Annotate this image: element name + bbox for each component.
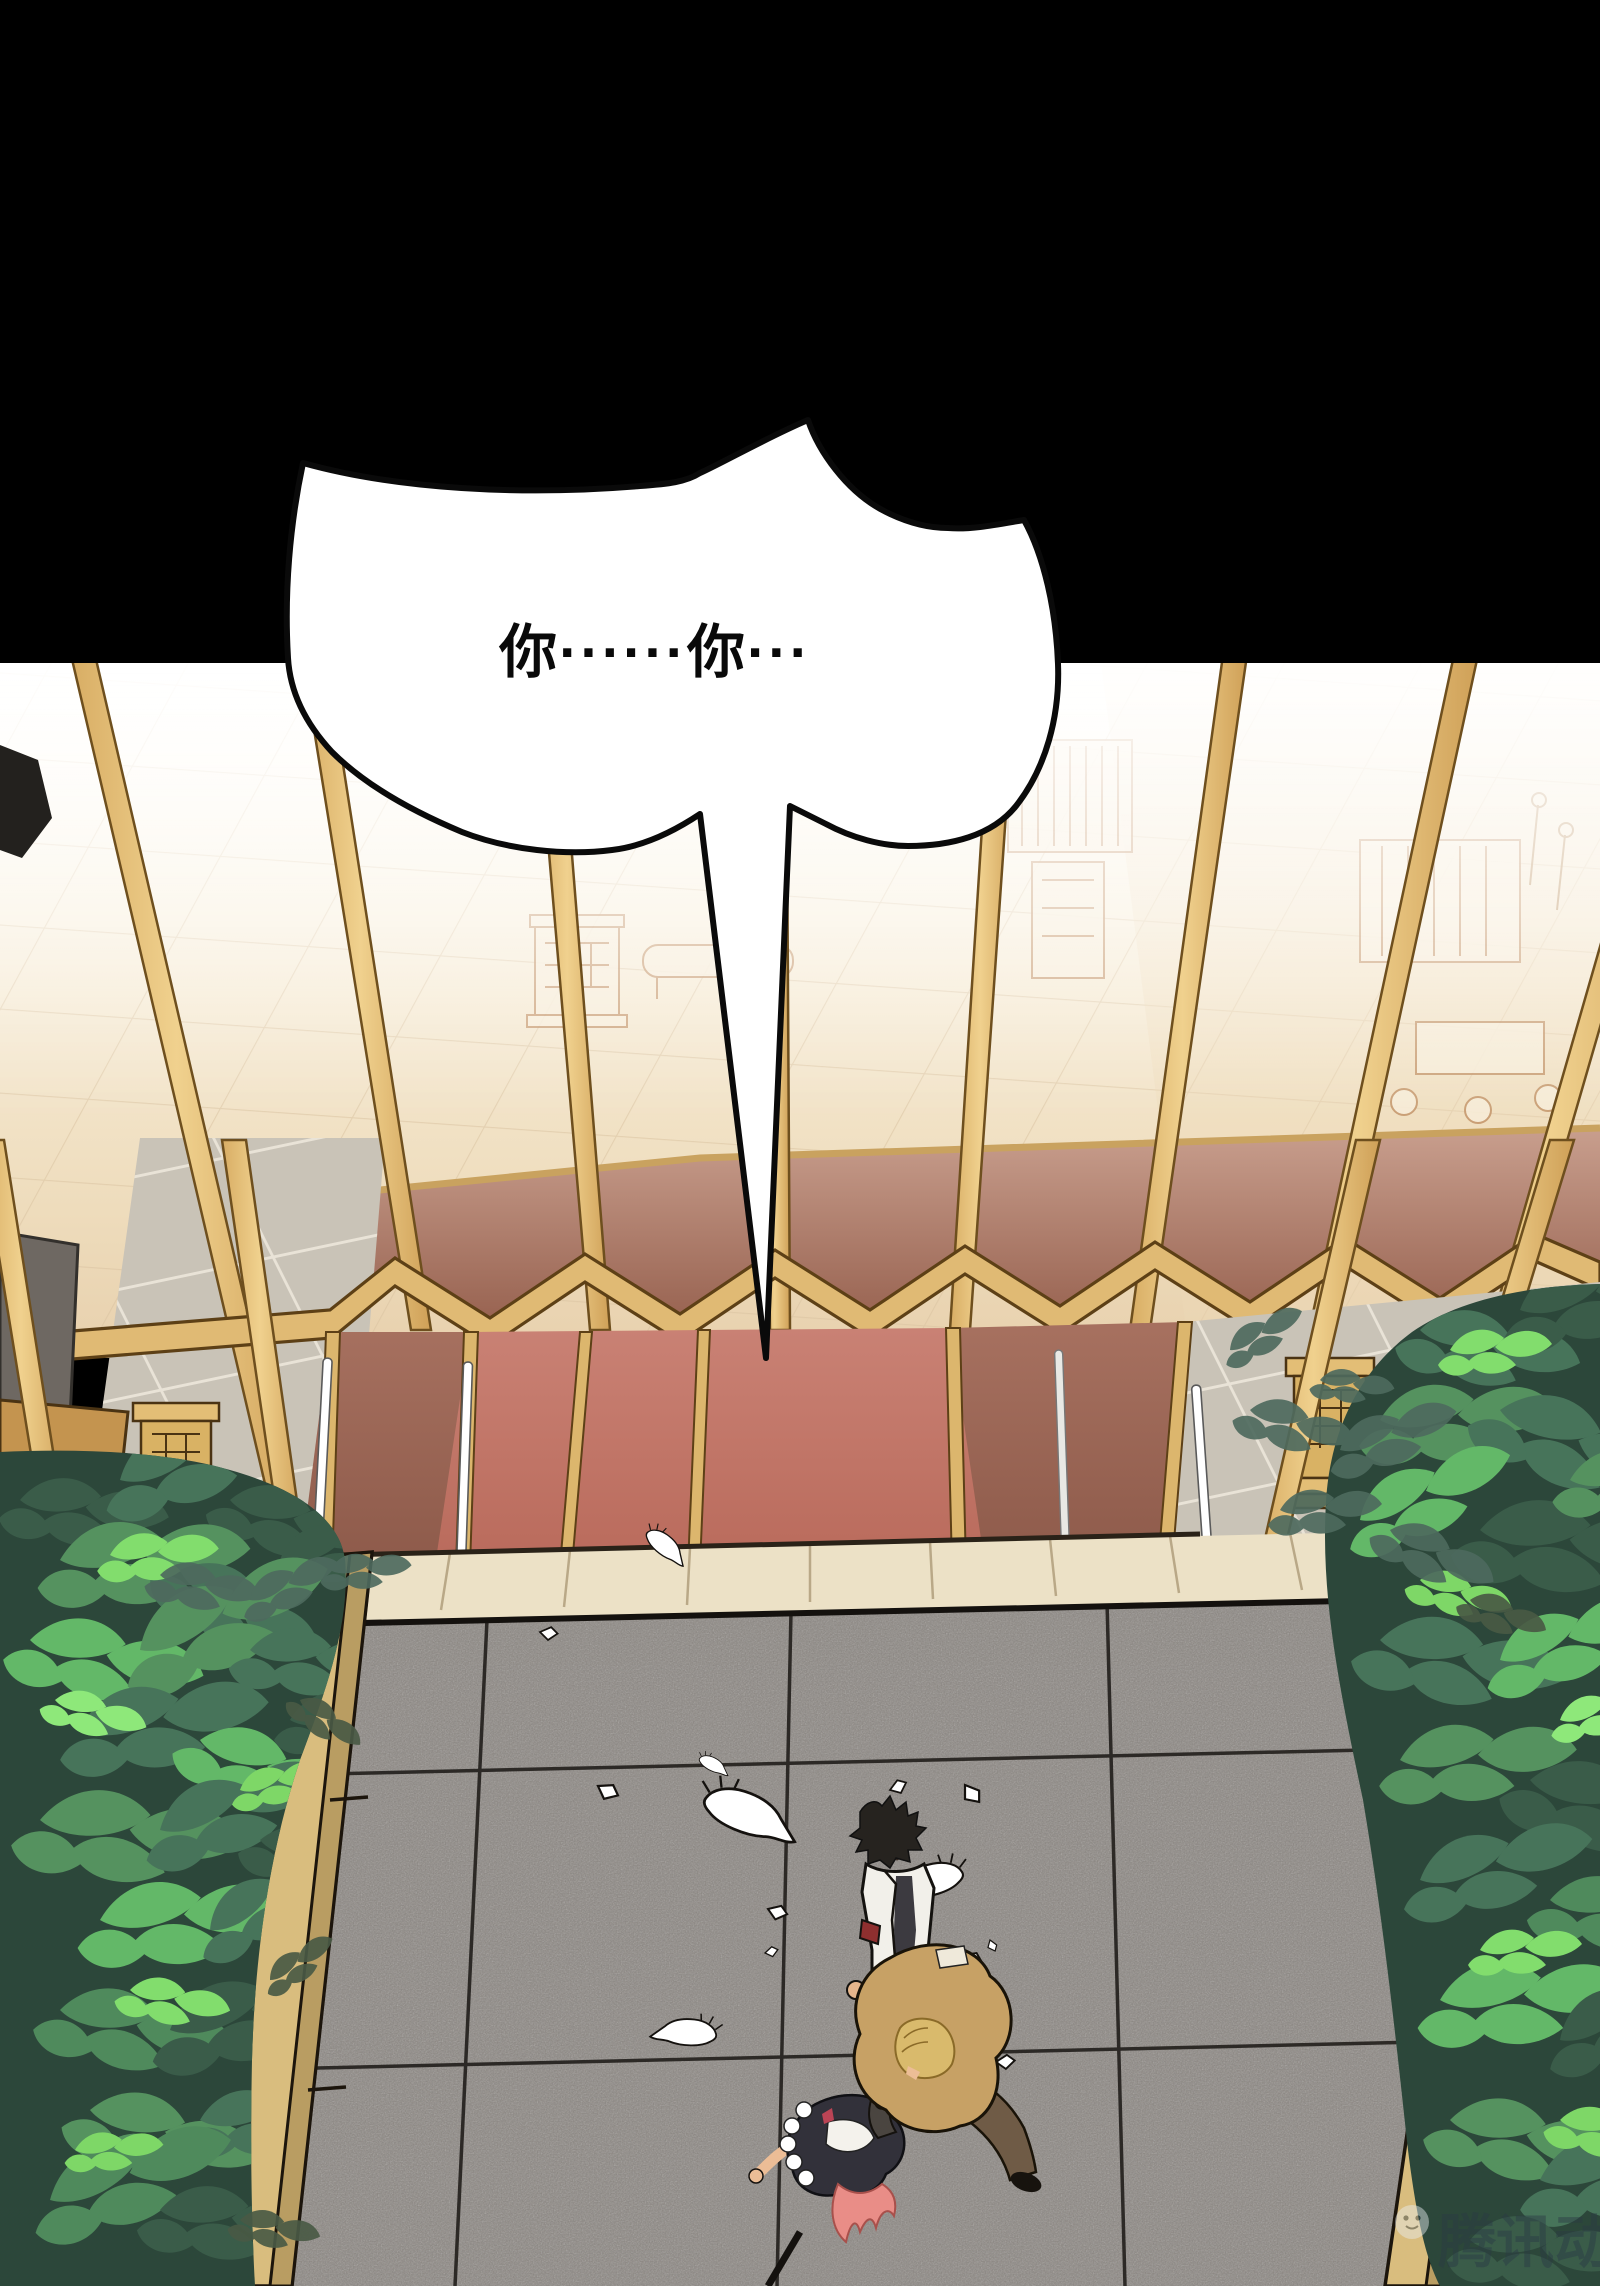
red-carpet bbox=[435, 1328, 990, 1566]
comic-panel: 你······你··· 腾讯动漫 bbox=[0, 0, 1600, 2286]
penguin-mascot-icon bbox=[1395, 2205, 1429, 2239]
speech-bubble-text: 你······你··· bbox=[498, 620, 811, 685]
watermark-text: 腾讯动漫 bbox=[1438, 2210, 1600, 2275]
shirt-collar bbox=[936, 1946, 968, 1968]
hand bbox=[749, 2169, 763, 2183]
comic-panel-illustration: 你······你··· 腾讯动漫 bbox=[0, 0, 1600, 2286]
